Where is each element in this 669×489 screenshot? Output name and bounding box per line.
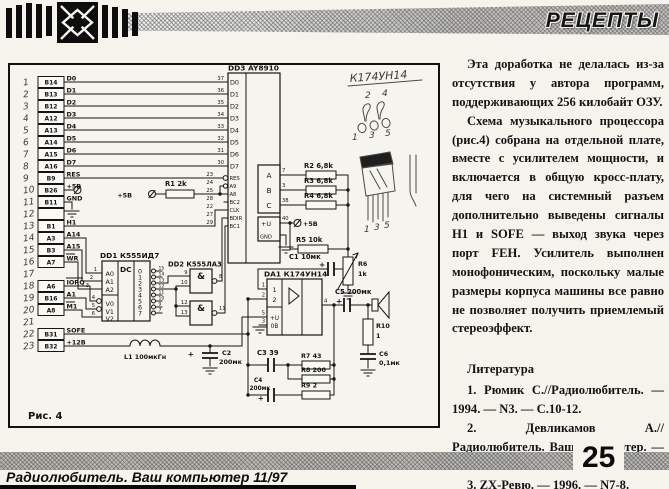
handwritten-margin-number: 7: [23, 150, 30, 161]
handwritten-margin-number: 10: [23, 185, 36, 196]
connector-pin-label: A7: [47, 259, 56, 266]
svg-text:R1 2k: R1 2k: [165, 180, 187, 188]
handwritten-margin-number: 14: [23, 233, 36, 244]
svg-text:4: 4: [324, 299, 328, 305]
schematic-svg: 1B14D02B13D13B12D24A12D35A13D46A14D57A15…: [10, 65, 438, 426]
handwritten-margin-number: 22: [23, 329, 36, 340]
svg-text:D5: D5: [230, 139, 239, 147]
svg-text:R4 6,8k: R4 6,8k: [304, 192, 333, 200]
handwritten-margin-number: 3: [23, 102, 30, 113]
svg-text:R5 10k: R5 10k: [296, 236, 323, 244]
svg-text:1: 1: [376, 332, 380, 340]
svg-text:+: +: [258, 395, 264, 403]
dd2-ref: DD2 К555ЛА3: [168, 261, 222, 269]
handwritten-margin-number: 11: [23, 197, 36, 208]
circuit-figure: 1B14D02B13D13B12D24A12D35A13D46A14D57A15…: [8, 63, 440, 428]
connector-signal-label: +5В: [67, 183, 82, 191]
svg-text:R6: R6: [358, 260, 368, 268]
svg-text:28: 28: [206, 196, 213, 202]
figure-caption: Рис. 4: [28, 411, 63, 422]
handwritten-margin-number: 15: [23, 245, 36, 256]
svg-text:C: C: [266, 201, 271, 210]
svg-text:12: 12: [159, 284, 165, 290]
connector-pin-label: B12: [45, 103, 58, 110]
svg-text:C3 39: C3 39: [257, 349, 279, 357]
handwritten-margin-number: 2: [23, 90, 30, 101]
svg-text:D1: D1: [230, 91, 239, 99]
svg-text:2: 2: [365, 91, 371, 101]
svg-text:D0: D0: [230, 79, 239, 87]
svg-text:R8 200: R8 200: [301, 366, 326, 374]
connector-pin-box: [38, 209, 64, 220]
svg-text:+: +: [336, 297, 342, 306]
connector-pin-label: B32: [45, 343, 58, 350]
page-number: 25: [573, 444, 624, 471]
svg-text:0В: 0В: [271, 324, 279, 330]
svg-text:V0: V0: [106, 300, 114, 308]
dd1-ref: DD1 К555ИД7: [100, 251, 159, 260]
connector-pin-label: B3: [47, 247, 56, 254]
connector-signal-label: D1: [67, 87, 77, 95]
svg-text:+5В: +5В: [303, 220, 318, 228]
svg-text:B: B: [266, 186, 271, 195]
connector-signal-label: D6: [67, 147, 77, 155]
svg-text:L1 100мкГн: L1 100мкГн: [124, 353, 166, 361]
footer-halftone-bar: [0, 452, 669, 470]
svg-text:A: A: [266, 171, 271, 180]
handwritten-margin-number: 12: [23, 209, 36, 220]
svg-text:11: 11: [219, 306, 226, 312]
handwritten-margin-number: 23: [23, 341, 36, 352]
svg-text:1: 1: [94, 267, 97, 273]
connector-pin-label: A16: [45, 163, 58, 170]
connector-pin-label: B11: [45, 199, 58, 206]
handwritten-margin-number: 1: [23, 78, 30, 89]
svg-text:11: 11: [159, 290, 165, 296]
svg-text:6: 6: [92, 311, 95, 317]
connector-signal-label: M1: [67, 303, 78, 311]
connector-signal-label: D2: [67, 99, 77, 107]
connector-pin-label: A13: [45, 127, 58, 134]
svg-text:2: 2: [90, 275, 93, 281]
svg-text:3: 3: [86, 283, 89, 289]
svg-text:200мк: 200мк: [219, 358, 243, 366]
svg-text:V2: V2: [106, 315, 114, 323]
svg-text:15: 15: [159, 266, 165, 272]
connector-pin-label: A8: [47, 307, 56, 314]
svg-text:A0: A0: [106, 270, 114, 278]
connector-pin-label: B16: [45, 295, 58, 302]
svg-text:2: 2: [272, 296, 276, 304]
handwritten-margin-number: 16: [23, 257, 36, 268]
svg-text:1: 1: [272, 286, 276, 294]
svg-text:D6: D6: [230, 151, 239, 159]
svg-text:14: 14: [159, 272, 165, 278]
svg-text:1: 1: [262, 283, 265, 289]
svg-text:0,1мк: 0,1мк: [379, 359, 401, 367]
svg-text:25: 25: [206, 188, 213, 194]
svg-text:4: 4: [92, 295, 96, 301]
speaker-icon: [372, 292, 389, 318]
svg-text:R9 2: R9 2: [301, 382, 317, 390]
svg-text:10: 10: [159, 296, 165, 302]
svg-text:C4: C4: [254, 378, 262, 384]
handwritten-margin-number: 6: [23, 138, 30, 149]
svg-text:30: 30: [217, 160, 224, 166]
svg-text:CLK: CLK: [230, 208, 241, 214]
dd3-databus-pin-numbers: 37 36 35 34 33 32 31 30: [217, 76, 224, 166]
svg-text:A9: A9: [230, 184, 237, 190]
footer-black-bar: [0, 485, 356, 489]
handwritten-margin-number: 13: [23, 221, 36, 232]
svg-text:5: 5: [384, 221, 390, 231]
svg-text:1: 1: [364, 225, 370, 235]
svg-text:A8: A8: [230, 192, 237, 198]
svg-text:BDIR: BDIR: [230, 216, 243, 222]
svg-text:13: 13: [181, 310, 188, 316]
connector-signal-label: D3: [67, 111, 77, 119]
handwritten-margin-number: 4: [23, 114, 30, 125]
svg-text:D4: D4: [230, 127, 239, 135]
connector-pin-label: A14: [45, 139, 58, 146]
svg-text:38: 38: [282, 198, 289, 204]
svg-text:К174УН14: К174УН14: [349, 68, 408, 85]
svg-text:40: 40: [282, 216, 289, 222]
svg-text:23: 23: [206, 172, 213, 178]
svg-text:7: 7: [282, 168, 285, 174]
svg-text:7: 7: [159, 308, 162, 314]
connector-signal-label: A14: [67, 231, 81, 239]
svg-text:R3 6,8k: R3 6,8k: [304, 177, 333, 185]
svg-text:C2: C2: [222, 349, 231, 357]
svg-text:C1 10мк: C1 10мк: [289, 253, 321, 261]
svg-text:3: 3: [369, 131, 375, 141]
svg-text:200мк: 200мк: [250, 386, 271, 392]
connector-signal-label: D7: [67, 159, 77, 167]
svg-text:4: 4: [382, 89, 388, 99]
svg-text:35: 35: [217, 100, 224, 106]
svg-text:3: 3: [262, 319, 265, 325]
svg-text:12: 12: [181, 300, 188, 306]
svg-text:9: 9: [184, 270, 187, 276]
system-connector: 1B14D02B13D13B12D24A12D35A13D46A14D57A15…: [23, 75, 86, 353]
svg-text:34: 34: [217, 112, 224, 118]
connector-pin-label: B26: [45, 187, 58, 194]
article-paragraph-2: Схема музыкального процессора (рис.4) со…: [452, 112, 664, 339]
svg-text:10: 10: [181, 280, 188, 286]
connector-pin-label: A12: [45, 115, 58, 122]
connector-signal-label: D4: [67, 123, 77, 131]
amplifier-triangle-icon: [289, 288, 299, 304]
literature-item: 3. ZX-Ревю. — 1996. — N7-8.: [452, 476, 664, 489]
svg-text:5: 5: [385, 129, 391, 139]
handwritten-margin-number: 8: [23, 162, 30, 173]
connector-signal-label: A15: [67, 243, 81, 251]
svg-text:D7: D7: [230, 163, 239, 171]
svg-text:29: 29: [206, 220, 213, 226]
svg-text:+U: +U: [261, 220, 271, 228]
svg-text:A1: A1: [106, 278, 114, 286]
connector-signal-label: IORQ: [67, 279, 86, 287]
connector-pin-label: B14: [45, 79, 58, 86]
dd3-ref: DD3 AY8910: [228, 65, 279, 73]
connector-pin-label: B31: [45, 331, 58, 338]
connector-pin-label: B9: [47, 175, 56, 182]
handwritten-margin-number: 19: [23, 293, 36, 304]
svg-text:9: 9: [159, 302, 162, 308]
article-paragraph-1: Эта доработка не делалась из-за отсутств…: [452, 55, 664, 112]
svg-text:BC2: BC2: [230, 200, 240, 206]
svg-text:RES: RES: [230, 176, 240, 182]
connector-signal-label: +12В: [67, 339, 86, 347]
svg-text:7: 7: [138, 310, 142, 318]
handwritten-margin-number: 17: [23, 269, 36, 280]
connector-signal-label: RES: [67, 171, 81, 179]
svg-text:5: 5: [262, 311, 265, 317]
svg-text:&: &: [197, 272, 205, 282]
connector-signal-label: A1: [67, 291, 76, 299]
svg-text:31: 31: [217, 148, 224, 154]
svg-text:R10: R10: [376, 322, 390, 330]
connector-pin-label: B13: [45, 91, 58, 98]
svg-text:32: 32: [217, 136, 224, 142]
svg-text:GND: GND: [260, 235, 272, 241]
journal-footer: Радиолюбитель. Ваш компьютер 11/97: [6, 469, 287, 485]
svg-text:33: 33: [217, 124, 224, 130]
connector-signal-label: GND: [67, 195, 83, 203]
page-title: РЕЦЕПТЫ: [546, 9, 659, 33]
connector-signal-label: H1: [67, 219, 77, 227]
handwritten-margin-number: 21: [23, 317, 36, 328]
magazine-page: РЕЦЕПТЫ: [0, 0, 669, 489]
header-ornament: [2, 0, 147, 50]
svg-text:C6: C6: [379, 350, 389, 358]
svg-text:C5 200мк: C5 200мк: [335, 288, 372, 296]
svg-text:37: 37: [217, 76, 224, 82]
literature-heading: Литература: [452, 360, 664, 379]
svg-text:13: 13: [159, 278, 165, 284]
handwritten-margin-number: 18: [23, 281, 36, 292]
handwritten-margin-number: 20: [23, 305, 36, 316]
da1-labels: 1 2 5 3 4 1 2 +U 0В: [262, 283, 328, 331]
svg-text:A2: A2: [106, 286, 114, 294]
connector-signal-label: D0: [67, 75, 77, 83]
svg-text:22: 22: [206, 204, 213, 210]
connector-pin-label: B1: [47, 223, 56, 230]
svg-text:D3: D3: [230, 115, 239, 123]
svg-text:3: 3: [282, 183, 285, 189]
svg-text:R7 43: R7 43: [301, 352, 322, 360]
dd3-data-pin-names: D0 D1 D2 D3 D4 D5 D6 D7: [230, 79, 239, 171]
svg-text:&: &: [197, 304, 205, 314]
literature-item: 1. Рюмик С.//Радиолюбитель. — 1994. — N3…: [452, 381, 664, 419]
connector-pin-label: A6: [47, 283, 56, 290]
handwritten-margin-number: 5: [23, 126, 30, 137]
connector-pin-label: A3: [47, 235, 56, 242]
svg-text:5: 5: [92, 303, 95, 309]
connector-pin-label: A15: [45, 151, 58, 158]
connector-signal-label: D5: [67, 135, 77, 143]
connector-signal-label: WR: [67, 255, 79, 263]
svg-text:1k: 1k: [358, 270, 367, 278]
svg-text:+5В: +5В: [117, 192, 132, 200]
handwritten-annotation: К174УН14 2 4 1 3 5 1 3 5: [348, 68, 422, 235]
svg-text:27: 27: [206, 212, 213, 218]
svg-text:1: 1: [352, 133, 358, 143]
svg-text:+: +: [319, 260, 325, 269]
handwritten-margin-number: 9: [23, 174, 30, 185]
svg-text:+U: +U: [270, 316, 279, 322]
da1-ref: DA1 К174УН14: [264, 270, 327, 279]
svg-text:8: 8: [219, 274, 222, 280]
svg-text:DC: DC: [120, 265, 132, 274]
svg-text:24: 24: [206, 180, 213, 186]
article-column: Эта доработка не делалась из-за отсутств…: [452, 55, 664, 489]
svg-text:D2: D2: [230, 103, 239, 111]
svg-text:2: 2: [262, 293, 265, 299]
svg-text:36: 36: [217, 88, 224, 94]
svg-text:R2 6,8k: R2 6,8k: [304, 162, 333, 170]
connector-signal-label: SOFE: [67, 327, 86, 335]
svg-text:+: +: [188, 350, 194, 359]
svg-text:BC1: BC1: [230, 224, 240, 230]
svg-text:3: 3: [374, 223, 380, 233]
